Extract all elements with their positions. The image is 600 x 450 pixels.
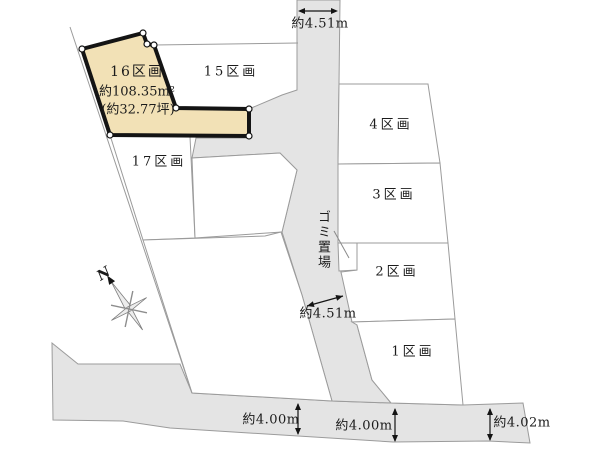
plot-map-canvas bbox=[0, 0, 600, 450]
plot-16-label: 16区画 bbox=[110, 65, 164, 79]
plot-3-outline bbox=[338, 163, 448, 243]
plot-3-label: 3区画 bbox=[372, 189, 415, 202]
garbage-area-label: ゴミ置場 bbox=[316, 210, 329, 270]
dimension-middle: 約4.51m bbox=[299, 308, 356, 321]
plot-16-area-m2: 約108.35m² bbox=[99, 86, 175, 99]
plot-17-label: 17区画 bbox=[132, 156, 187, 169]
plot-2-label: 2区画 bbox=[375, 266, 418, 279]
dimension-bottom-center: 約4.00m bbox=[335, 420, 392, 433]
garbage-area-box bbox=[338, 243, 357, 271]
dimension-bottom-left: 約4.00m bbox=[242, 414, 299, 427]
plot-15-label: 15区画 bbox=[204, 66, 259, 79]
plot-17-outline bbox=[110, 135, 195, 240]
plot-2-outline bbox=[341, 243, 455, 322]
dimension-bottom-right: 約4.02m bbox=[493, 417, 550, 430]
plot-map: 16区画 約108.35m² (約32.77坪) 15区画 17区画 4区画 3… bbox=[0, 0, 600, 450]
plot-unlabeled-upper bbox=[192, 153, 297, 238]
plot-15-top-boundary bbox=[154, 43, 298, 45]
plot-4-label: 4区画 bbox=[369, 119, 412, 132]
plot-16-area-tsubo: (約32.77坪) bbox=[101, 104, 174, 117]
dimension-top: 約4.51m bbox=[291, 18, 348, 31]
plot-1-label: 1区画 bbox=[391, 346, 434, 359]
